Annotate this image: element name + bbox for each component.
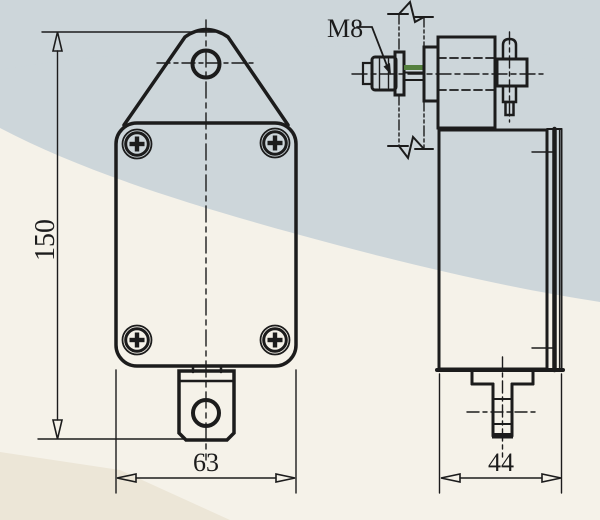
paper-background (0, 0, 600, 520)
screw-top-left (123, 130, 152, 159)
thread-label-text: M8 (327, 14, 363, 43)
technical-drawing: 150 63 (0, 0, 600, 520)
drawing-sheet: 150 63 (0, 0, 600, 520)
screw-top-right (261, 129, 290, 158)
dimension-150-text: 150 (30, 219, 61, 261)
thread-highlight (404, 65, 424, 70)
dimension-63-text: 63 (193, 448, 219, 477)
dimension-44-text: 44 (488, 448, 514, 477)
screw-bottom-left (123, 326, 152, 355)
screw-bottom-right (261, 326, 290, 355)
